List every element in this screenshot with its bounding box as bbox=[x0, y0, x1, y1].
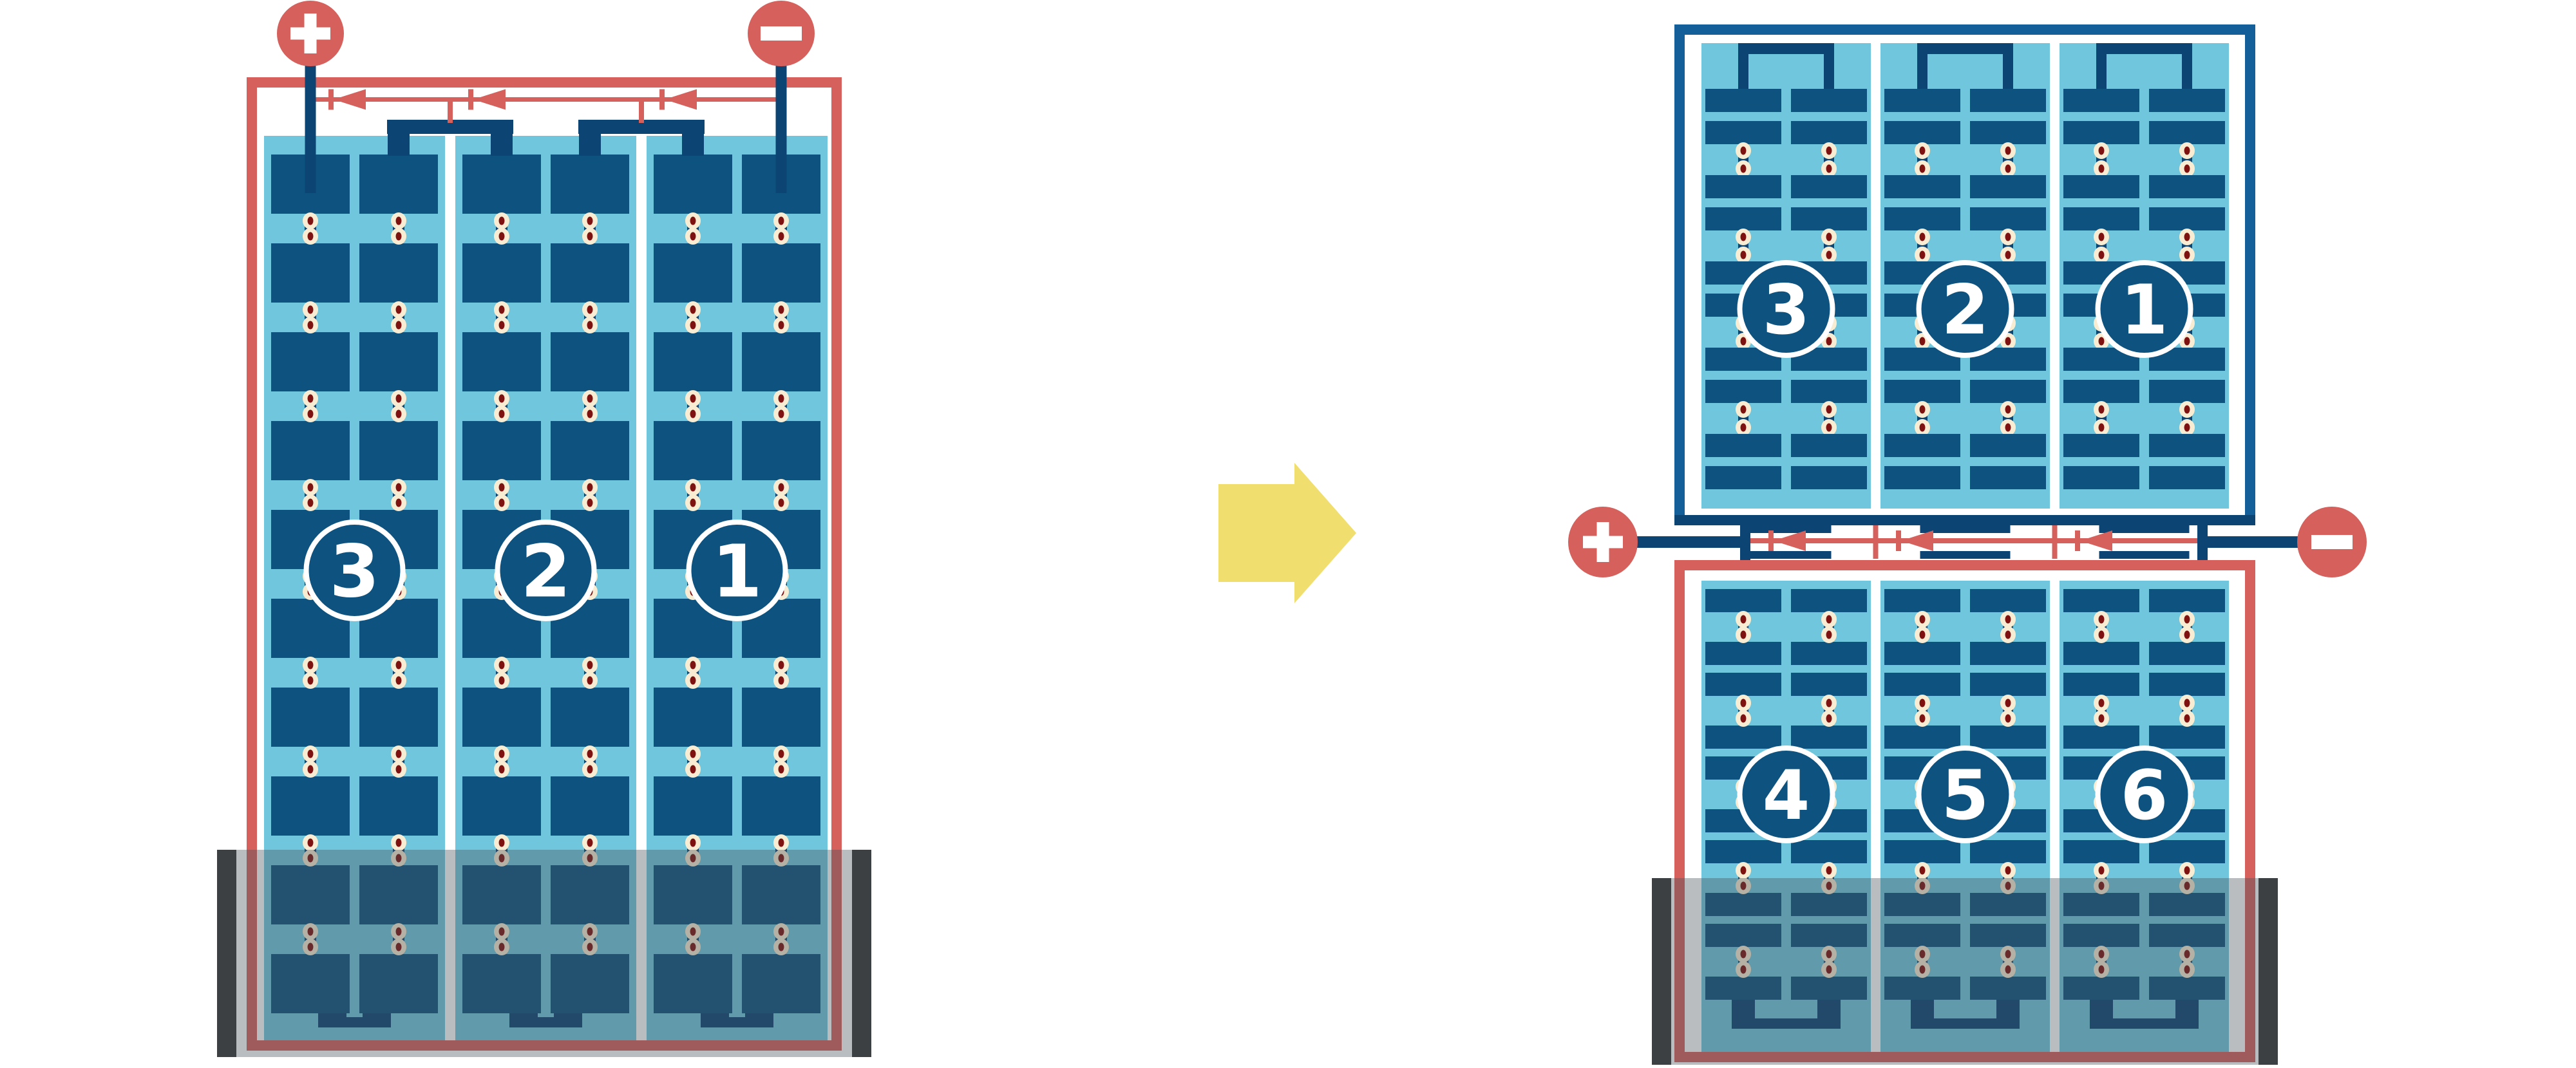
cell-interconnect-dot bbox=[1821, 247, 1837, 263]
cell-interconnect-dot bbox=[2000, 611, 2016, 628]
dot-core bbox=[2005, 699, 2011, 707]
cell-interconnect-dot bbox=[685, 761, 701, 778]
half-cut-cell bbox=[2063, 642, 2139, 665]
dot-core bbox=[499, 395, 505, 403]
cell-interconnect-dot bbox=[2179, 229, 2195, 245]
half-cut-cell bbox=[2149, 466, 2225, 489]
diode-arrow-icon bbox=[473, 89, 506, 110]
half-cut-cell bbox=[1884, 380, 1960, 403]
diode-tap bbox=[448, 100, 453, 123]
half-cut-cell bbox=[1791, 175, 1867, 198]
diode-arrow-icon bbox=[334, 89, 366, 110]
dot-core bbox=[308, 677, 314, 685]
cell-interconnect-dot bbox=[1736, 229, 1751, 245]
dot-core bbox=[308, 499, 314, 507]
half-cut-cell bbox=[2063, 380, 2139, 403]
dot-core bbox=[587, 839, 593, 847]
half-cut-cell bbox=[1791, 207, 1867, 230]
diode-wire bbox=[1750, 538, 2197, 543]
cell-interconnect-dot bbox=[494, 301, 509, 318]
cell-interconnect-dot bbox=[1736, 247, 1751, 263]
shade-overlay bbox=[1652, 878, 2278, 1065]
cell-interconnect-dot bbox=[582, 657, 598, 673]
cell-interconnect-dot bbox=[2094, 695, 2109, 711]
dot-core bbox=[308, 661, 314, 670]
badge-number: 1 bbox=[2121, 270, 2168, 350]
half-cut-cell bbox=[2063, 726, 2139, 749]
dot-core bbox=[1920, 631, 1926, 639]
u-bar bbox=[1738, 43, 1834, 54]
cell-interconnect-dot bbox=[391, 212, 406, 229]
dot-core bbox=[1741, 251, 1747, 259]
half-cut-cell bbox=[1970, 466, 2046, 489]
cell-interconnect-dot bbox=[303, 761, 318, 778]
dot-core bbox=[2099, 337, 2105, 346]
solar-cell bbox=[359, 243, 438, 303]
cell-interconnect-dot bbox=[773, 657, 789, 673]
solar-cell bbox=[551, 332, 629, 391]
solar-cell bbox=[359, 421, 438, 480]
cell-interconnect-dot bbox=[391, 406, 406, 422]
half-cut-cell bbox=[1705, 642, 1781, 665]
cell-interconnect-dot bbox=[2094, 229, 2109, 245]
cell-interconnect-dot bbox=[1915, 247, 1930, 263]
dot-core bbox=[2099, 631, 2105, 639]
half-cut-cell bbox=[1791, 89, 1867, 112]
plus-icon bbox=[1597, 522, 1609, 562]
half-cut-cell bbox=[1970, 642, 2046, 665]
cell-interconnect-dot bbox=[2094, 862, 2109, 879]
diode-arrow-icon bbox=[2080, 530, 2112, 551]
badge-number: 4 bbox=[1763, 756, 1810, 835]
dot-core bbox=[779, 395, 784, 403]
cell-interconnect-dot bbox=[494, 834, 509, 851]
half-cut-cell bbox=[1970, 434, 2046, 457]
u-bar bbox=[2096, 43, 2192, 54]
frame-right bbox=[2245, 24, 2255, 525]
cell-interconnect-dot bbox=[303, 301, 318, 318]
solar-cell bbox=[654, 776, 732, 836]
bypass-diode bbox=[1896, 530, 1933, 551]
cell-interconnect-dot bbox=[303, 406, 318, 422]
dot-core bbox=[2005, 715, 2011, 723]
frame-top bbox=[1674, 24, 2255, 35]
solar-cell bbox=[271, 776, 350, 836]
dot-core bbox=[1826, 337, 1832, 346]
dot-core bbox=[2005, 406, 2011, 414]
dot-core bbox=[1741, 233, 1747, 241]
badge-number: 3 bbox=[330, 530, 380, 614]
dot-core bbox=[1741, 615, 1747, 624]
dot-core bbox=[2099, 867, 2105, 875]
cell-interconnect-dot bbox=[1736, 695, 1751, 711]
bus-tab bbox=[1741, 525, 1832, 533]
terminal-stub bbox=[1631, 536, 1740, 548]
string-number-badge: 2 bbox=[498, 522, 594, 619]
half-cut-cell bbox=[2149, 175, 2225, 198]
cell-interconnect-dot bbox=[2179, 160, 2195, 177]
cell-interconnect-dot bbox=[391, 657, 406, 673]
dot-core bbox=[587, 677, 593, 685]
dot-core bbox=[587, 483, 593, 492]
cell-interconnect-dot bbox=[582, 745, 598, 762]
cell-interconnect-dot bbox=[1821, 419, 1837, 436]
cell-interconnect-dot bbox=[1821, 626, 1837, 643]
half-cut-cell bbox=[1970, 840, 2046, 863]
half-cut-cell bbox=[1705, 175, 1781, 198]
dot-core bbox=[1826, 233, 1832, 241]
cell-interconnect-dot bbox=[685, 317, 701, 333]
solar-cell bbox=[551, 688, 629, 747]
cell-interconnect-dot bbox=[303, 745, 318, 762]
half-cut-cell bbox=[1884, 89, 1960, 112]
cell-interconnect-dot bbox=[582, 212, 598, 229]
half-cut-cell bbox=[1791, 642, 1867, 665]
cell-interconnect-dot bbox=[1915, 611, 1930, 628]
solar-cell bbox=[742, 243, 820, 303]
string-bridge bbox=[387, 120, 513, 156]
right-module-top-half: 321 bbox=[1674, 24, 2255, 533]
cell-interconnect-dot bbox=[685, 494, 701, 511]
cell-interconnect-dot bbox=[2094, 710, 2109, 727]
cell-interconnect-dot bbox=[1821, 710, 1837, 727]
u-leg bbox=[1738, 54, 1748, 90]
dot-core bbox=[1920, 867, 1926, 875]
badge-number: 6 bbox=[2121, 756, 2168, 835]
string-number-badge: 3 bbox=[1740, 263, 1833, 355]
half-cut-cell bbox=[2063, 673, 2139, 696]
diode-bar bbox=[1896, 530, 1901, 551]
dot-core bbox=[587, 232, 593, 241]
dot-core bbox=[1741, 867, 1747, 875]
cell-interconnect-dot bbox=[1821, 611, 1837, 628]
dot-core bbox=[396, 677, 402, 685]
cell-interconnect-dot bbox=[1915, 710, 1930, 727]
half-cut-cell bbox=[1791, 589, 1867, 612]
cell-interconnect-dot bbox=[582, 406, 598, 422]
dot-core bbox=[1920, 615, 1926, 624]
cell-interconnect-dot bbox=[2000, 626, 2016, 643]
dot-core bbox=[1920, 699, 1926, 707]
cell-interconnect-dot bbox=[303, 317, 318, 333]
half-cut-cell bbox=[2149, 207, 2225, 230]
solar-cell bbox=[359, 155, 438, 214]
cell-interconnect-dot bbox=[494, 761, 509, 778]
cell-interconnect-dot bbox=[494, 745, 509, 762]
dot-core bbox=[2005, 337, 2011, 346]
cell-interconnect-dot bbox=[1736, 401, 1751, 418]
cell-interconnect-dot bbox=[582, 672, 598, 689]
minus-icon bbox=[2311, 535, 2353, 549]
cell-interconnect-dot bbox=[1736, 710, 1751, 727]
shade-end-bar bbox=[852, 850, 871, 1057]
cell-interconnect-dot bbox=[773, 745, 789, 762]
half-cut-cell bbox=[1970, 726, 2046, 749]
half-cut-cell bbox=[1791, 840, 1867, 863]
dot-core bbox=[1741, 406, 1747, 414]
dot-core bbox=[690, 321, 696, 330]
dot-core bbox=[1741, 699, 1747, 707]
dot-core bbox=[690, 839, 696, 847]
dot-core bbox=[499, 839, 505, 847]
dot-core bbox=[2184, 406, 2190, 414]
half-cut-cell bbox=[1705, 380, 1781, 403]
dot-core bbox=[2005, 867, 2011, 875]
dot-core bbox=[690, 750, 696, 758]
dot-core bbox=[1741, 337, 1747, 346]
cell-interconnect-dot bbox=[303, 212, 318, 229]
dot-core bbox=[2005, 631, 2011, 639]
bus-tab bbox=[2099, 551, 2190, 559]
dot-core bbox=[396, 217, 402, 225]
diode-bar bbox=[328, 89, 334, 110]
half-cut-cell bbox=[1970, 673, 2046, 696]
bus-tab bbox=[1920, 551, 2011, 559]
solar-cell bbox=[271, 688, 350, 747]
string-number-badge: 4 bbox=[1740, 748, 1833, 841]
half-cut-cell bbox=[1705, 434, 1781, 457]
bypass-diode bbox=[659, 89, 697, 110]
dot-core bbox=[2005, 147, 2011, 155]
cell-interconnect-dot bbox=[2179, 862, 2195, 879]
shade-end-bar bbox=[2259, 878, 2278, 1065]
dot-core bbox=[2005, 165, 2011, 173]
dot-core bbox=[2184, 867, 2190, 875]
dot-core bbox=[2099, 251, 2105, 259]
dot-core bbox=[499, 677, 505, 685]
half-cut-cell bbox=[2149, 642, 2225, 665]
cell-interconnect-dot bbox=[303, 390, 318, 407]
cell-interconnect-dot bbox=[1915, 401, 1930, 418]
cell-interconnect-dot bbox=[2000, 142, 2016, 159]
solar-cell bbox=[742, 421, 820, 480]
dot-core bbox=[1826, 251, 1832, 259]
cell-interconnect-dot bbox=[1736, 862, 1751, 879]
cell-interconnect-dot bbox=[773, 212, 789, 229]
dot-core bbox=[690, 410, 696, 418]
cell-interconnect-dot bbox=[391, 672, 406, 689]
dot-core bbox=[396, 321, 402, 330]
half-cut-cell bbox=[2149, 380, 2225, 403]
cell-interconnect-dot bbox=[494, 494, 509, 511]
dot-core bbox=[1741, 424, 1747, 432]
dot-core bbox=[1826, 631, 1832, 639]
half-cut-cell bbox=[2063, 207, 2139, 230]
diode-line bbox=[310, 89, 781, 124]
solar-cell bbox=[742, 688, 820, 747]
cell-interconnect-dot bbox=[494, 479, 509, 496]
cell-interconnect-dot bbox=[2179, 626, 2195, 643]
half-cut-cell bbox=[1884, 434, 1960, 457]
half-cut-cell bbox=[1705, 589, 1781, 612]
solar-cell bbox=[359, 688, 438, 747]
cell-interconnect-dot bbox=[303, 657, 318, 673]
right-arrow-icon bbox=[1218, 463, 1356, 603]
cell-interconnect-dot bbox=[685, 745, 701, 762]
dot-core bbox=[1920, 337, 1926, 346]
half-cut-cell bbox=[1705, 726, 1781, 749]
u-leg bbox=[2096, 54, 2107, 90]
half-cut-cell bbox=[1791, 380, 1867, 403]
dot-core bbox=[1920, 147, 1926, 155]
half-cut-cell bbox=[1970, 380, 2046, 403]
cell-interconnect-dot bbox=[494, 212, 509, 229]
u-leg bbox=[2003, 54, 2013, 90]
cell-interconnect-dot bbox=[773, 834, 789, 851]
badge-number: 5 bbox=[1942, 756, 1989, 835]
solar-cell bbox=[462, 332, 541, 391]
dot-core bbox=[587, 395, 593, 403]
dot-core bbox=[1741, 631, 1747, 639]
dot-core bbox=[2005, 424, 2011, 432]
dot-core bbox=[587, 499, 593, 507]
solar-cell bbox=[462, 243, 541, 303]
cell-interconnect-dot bbox=[1915, 160, 1930, 177]
dot-core bbox=[499, 410, 505, 418]
dot-core bbox=[2184, 233, 2190, 241]
bypass-diode bbox=[468, 89, 506, 110]
half-cut-cell bbox=[2149, 121, 2225, 144]
cell-interconnect-dot bbox=[685, 301, 701, 318]
badge-number: 2 bbox=[521, 530, 571, 614]
cell-interconnect-dot bbox=[773, 479, 789, 496]
cell-interconnect-dot bbox=[773, 390, 789, 407]
dot-core bbox=[779, 765, 784, 774]
half-cut-solar-module-diagram: 321321456 bbox=[0, 0, 2576, 1068]
cell-interconnect-dot bbox=[2000, 695, 2016, 711]
frame-top bbox=[247, 77, 842, 88]
diode-wire bbox=[310, 97, 781, 102]
half-cut-cell bbox=[2063, 89, 2139, 112]
dot-core bbox=[2184, 337, 2190, 346]
cell-interconnect-dot bbox=[582, 761, 598, 778]
half-cut-cell bbox=[1705, 121, 1781, 144]
cell-interconnect-dot bbox=[1915, 626, 1930, 643]
solar-cell bbox=[654, 688, 732, 747]
cell-interconnect-dot bbox=[1821, 401, 1837, 418]
dot-core bbox=[779, 410, 784, 418]
shade-end-bar bbox=[1652, 878, 1671, 1065]
half-cut-cell bbox=[2149, 89, 2225, 112]
terminal-post bbox=[776, 63, 787, 193]
half-cut-cell bbox=[1884, 840, 1960, 863]
cell-interconnect-dot bbox=[2179, 611, 2195, 628]
dot-core bbox=[308, 765, 314, 774]
diagram-page: 321321456 bbox=[0, 0, 2576, 1068]
dot-core bbox=[690, 232, 696, 241]
dot-core bbox=[499, 765, 505, 774]
string-number-badge: 6 bbox=[2098, 748, 2191, 841]
cell-interconnect-dot bbox=[494, 672, 509, 689]
dot-core bbox=[308, 306, 314, 314]
cell-interconnect-dot bbox=[685, 406, 701, 422]
dot-core bbox=[690, 395, 696, 403]
dot-core bbox=[499, 306, 505, 314]
dot-core bbox=[587, 765, 593, 774]
half-cut-cell bbox=[1705, 840, 1781, 863]
dot-core bbox=[1741, 715, 1747, 723]
frame-top bbox=[1674, 560, 2255, 570]
dot-core bbox=[1920, 424, 1926, 432]
dot-core bbox=[1741, 165, 1747, 173]
u-leg bbox=[2182, 54, 2192, 90]
half-cut-cell bbox=[1970, 589, 2046, 612]
dot-core bbox=[587, 410, 593, 418]
cell-interconnect-dot bbox=[582, 479, 598, 496]
dot-core bbox=[396, 483, 402, 492]
half-cut-cell bbox=[2063, 175, 2139, 198]
dot-core bbox=[396, 661, 402, 670]
half-cut-cell bbox=[1705, 89, 1781, 112]
dot-core bbox=[2099, 233, 2105, 241]
half-cut-cell bbox=[1884, 175, 1960, 198]
cell-interconnect-dot bbox=[773, 317, 789, 333]
cell-interconnect-dot bbox=[1821, 862, 1837, 879]
minus-terminal bbox=[748, 1, 815, 66]
cell-interconnect-dot bbox=[494, 406, 509, 422]
half-cut-cell bbox=[2149, 726, 2225, 749]
dot-core bbox=[396, 232, 402, 241]
cell-interconnect-dot bbox=[303, 672, 318, 689]
cell-interconnect-dot bbox=[773, 228, 789, 245]
cell-interconnect-dot bbox=[773, 494, 789, 511]
cell-interconnect-dot bbox=[1736, 419, 1751, 436]
terminal-stub bbox=[2208, 536, 2304, 548]
cell-interconnect-dot bbox=[1915, 695, 1930, 711]
dot-core bbox=[2184, 165, 2190, 173]
cell-interconnect-dot bbox=[2094, 401, 2109, 418]
half-cut-cell bbox=[2063, 466, 2139, 489]
dot-core bbox=[779, 306, 784, 314]
cell-interconnect-dot bbox=[1736, 611, 1751, 628]
dot-core bbox=[779, 321, 784, 330]
solar-cell bbox=[271, 243, 350, 303]
solar-cell bbox=[271, 332, 350, 391]
half-cut-cell bbox=[1970, 175, 2046, 198]
dot-core bbox=[2099, 715, 2105, 723]
dot-core bbox=[587, 217, 593, 225]
dot-core bbox=[1826, 867, 1832, 875]
u-leg bbox=[1824, 54, 1834, 90]
cell-interconnect-dot bbox=[494, 228, 509, 245]
string-number-badge: 1 bbox=[689, 522, 786, 619]
cell-interconnect-dot bbox=[685, 479, 701, 496]
end-post bbox=[2197, 525, 2208, 560]
dot-core bbox=[2005, 233, 2011, 241]
cell-interconnect-dot bbox=[391, 390, 406, 407]
bridge-leg bbox=[682, 134, 704, 156]
cell-interconnect-dot bbox=[2094, 160, 2109, 177]
bridge-leg bbox=[579, 134, 601, 156]
dot-core bbox=[396, 839, 402, 847]
solar-cell bbox=[551, 421, 629, 480]
plus-terminal bbox=[1568, 507, 1638, 577]
cell-interconnect-dot bbox=[2000, 710, 2016, 727]
cell-interconnect-dot bbox=[2094, 611, 2109, 628]
shade-rect bbox=[217, 850, 871, 1057]
dot-core bbox=[1826, 147, 1832, 155]
solar-cell bbox=[271, 421, 350, 480]
dot-core bbox=[1826, 165, 1832, 173]
cell-interconnect-dot bbox=[494, 317, 509, 333]
solar-cell bbox=[654, 243, 732, 303]
cell-interconnect-dot bbox=[2179, 419, 2195, 436]
dot-core bbox=[2184, 715, 2190, 723]
diode-arrow-icon bbox=[1901, 530, 1933, 551]
cell-interconnect-dot bbox=[391, 301, 406, 318]
shade-rect bbox=[1652, 878, 2278, 1065]
cell-interconnect-dot bbox=[685, 228, 701, 245]
